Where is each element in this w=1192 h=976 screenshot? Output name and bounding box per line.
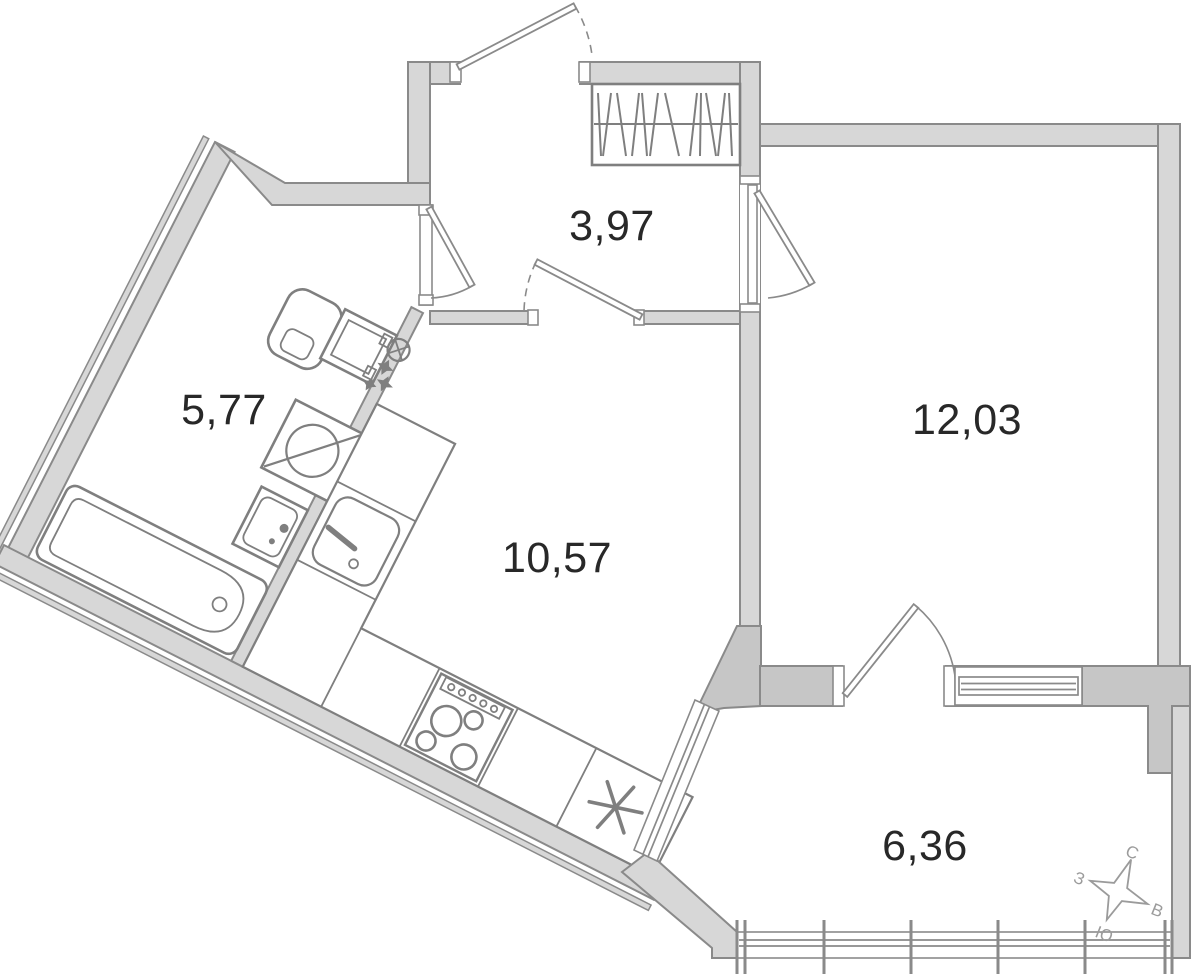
room-label-hallway: 3,97 (569, 202, 655, 250)
wall-left-outer-strip (0, 136, 209, 550)
wardrobe (592, 84, 740, 165)
compass-label-north: С (1123, 841, 1142, 863)
wall-bathroom-left (8, 142, 235, 559)
room-label-balcony: 6,36 (882, 822, 968, 870)
entrance-door (450, 3, 592, 86)
room-label-kitchen: 10,57 (502, 534, 612, 582)
kitchen-door (524, 259, 644, 326)
room-label-bathroom: 5,77 (181, 386, 267, 434)
balcony-door (833, 604, 956, 708)
wall-room-top (760, 124, 1180, 146)
room-door (740, 176, 815, 312)
wall-room-right (1158, 124, 1180, 666)
floor-plan-svg: 3,97 5,77 10,57 12,03 6,36 С В Ю З (0, 0, 1192, 976)
wall-bathroom-top (215, 142, 430, 205)
room-label-room: 12,03 (912, 396, 1022, 444)
floor-plan: 3,97 5,77 10,57 12,03 6,36 С В Ю З (0, 0, 1192, 976)
wall-balcony-right (1172, 706, 1190, 958)
bathroom-door (419, 205, 475, 305)
compass-label-east: В (1148, 900, 1166, 922)
wall-hall-room (740, 62, 760, 632)
wall-wedge (695, 626, 761, 713)
compass-label-west: З (1071, 868, 1088, 889)
room-balcony-window (955, 667, 1082, 705)
compass-star-icon (1079, 848, 1161, 931)
